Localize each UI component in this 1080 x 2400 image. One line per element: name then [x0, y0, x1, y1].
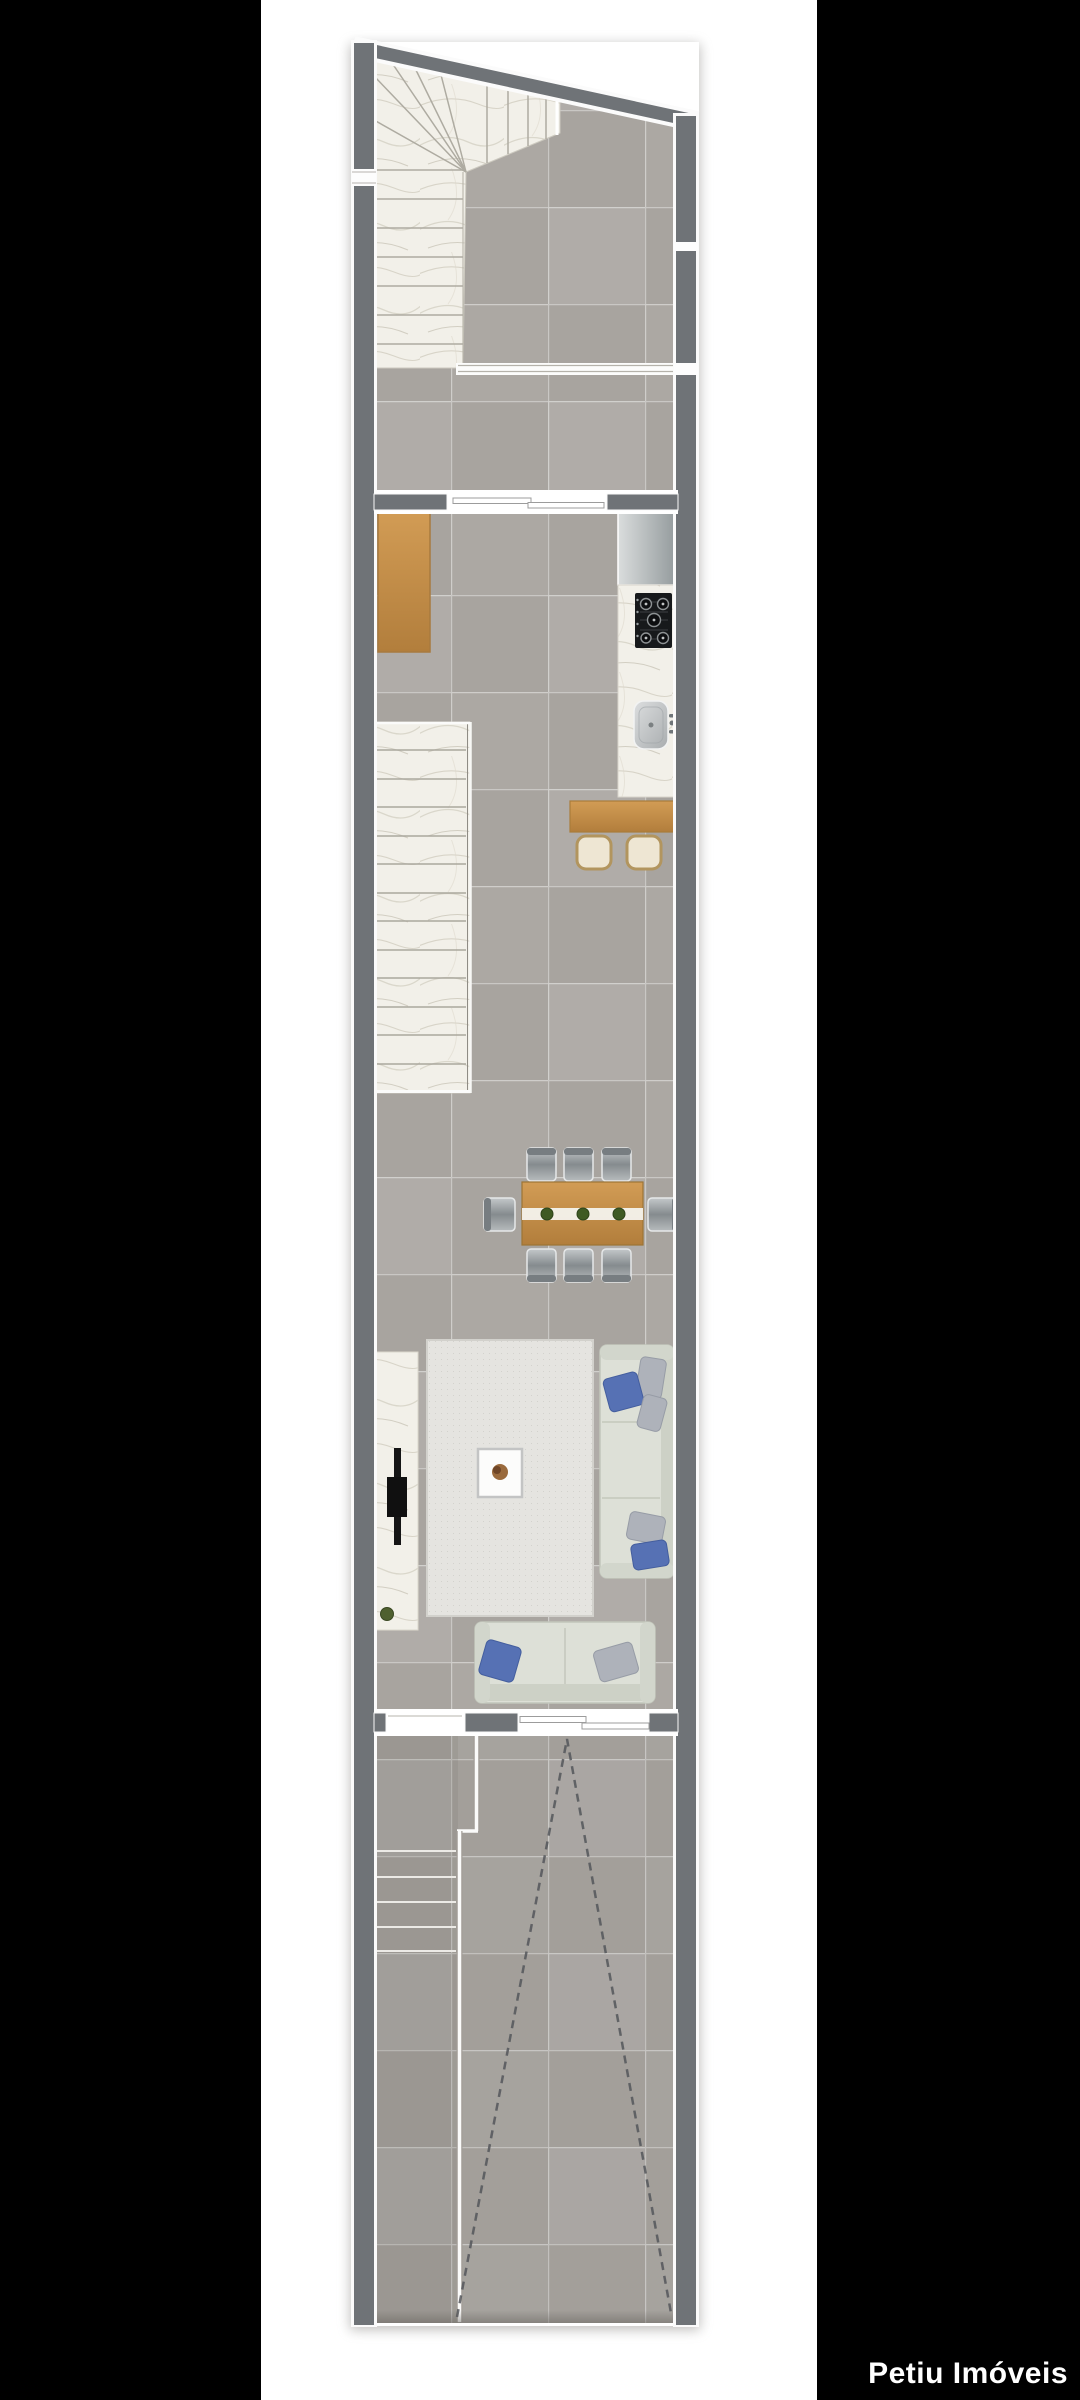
bar-stool: [577, 836, 611, 869]
left-wall: [354, 43, 374, 2325]
sliding-door-leaf: [582, 1723, 649, 1729]
centerpiece: [577, 1208, 589, 1220]
coffee-table: [478, 1449, 522, 1497]
sliding-door-leaf: [528, 503, 604, 509]
driveway-edge-shade: [374, 2310, 678, 2323]
sliding-door-leaf: [520, 1717, 586, 1723]
plant-icon: [381, 1608, 394, 1621]
kitchen-cabinet: [378, 511, 430, 652]
sofa-bottom: [475, 1622, 655, 1703]
cooktop-icon: [635, 593, 672, 648]
floorplan-canvas: Petiu Imóveis: [0, 0, 1080, 2400]
entry-walkway: [374, 1732, 458, 2323]
centerpiece: [613, 1208, 625, 1220]
sliding-door-leaf: [453, 498, 531, 504]
pillow-blue: [630, 1539, 670, 1570]
stair-guard-rail: [456, 363, 678, 375]
sofa-right: [600, 1345, 674, 1578]
floorplan-drawing: [0, 0, 1080, 2400]
right-wall: [676, 116, 696, 2325]
centerpiece: [541, 1208, 553, 1220]
kitchen-partition: [374, 490, 678, 514]
bar-stool: [627, 836, 661, 869]
garage-partition: [374, 1709, 678, 1736]
mid-staircase: [374, 722, 471, 1093]
watermark-logo: Petiu Imóveis: [868, 2357, 1068, 2391]
breakfast-table: [570, 801, 683, 832]
fridge: [618, 512, 677, 585]
